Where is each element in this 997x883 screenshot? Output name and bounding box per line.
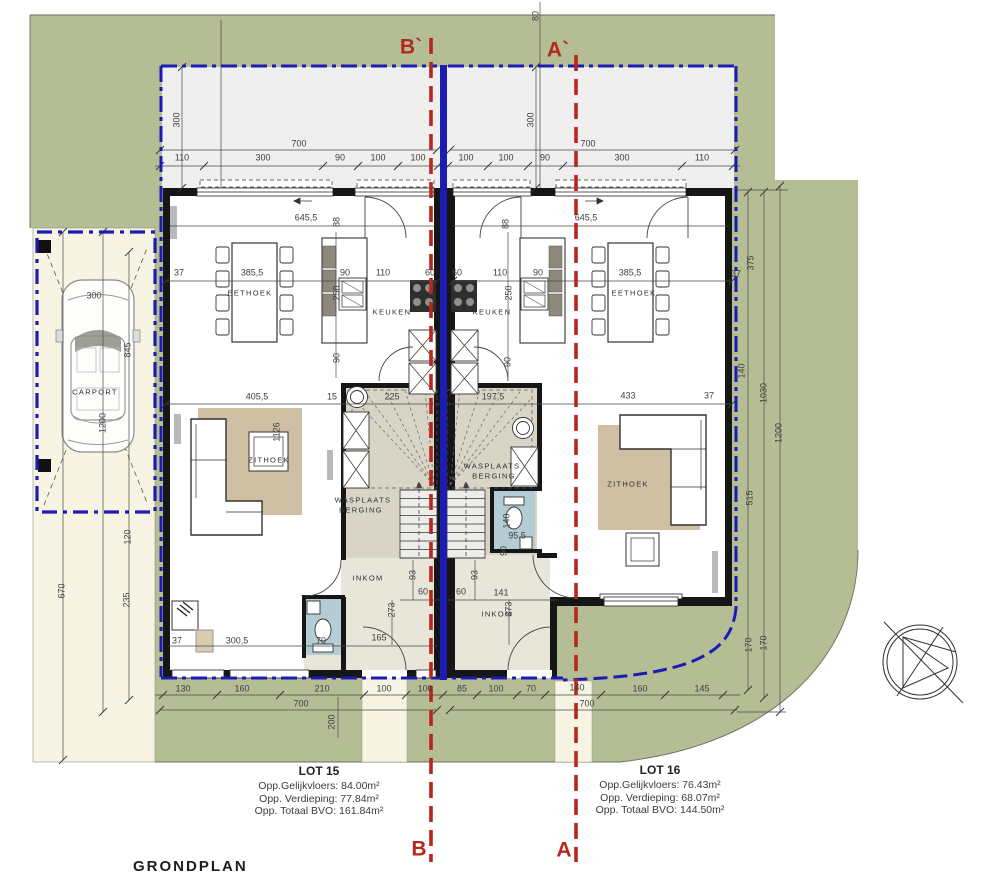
lot16-info: LOT 16 Opp.Gelijkvloers: 76.43m² Opp. Ve… [570,763,750,817]
radiator [174,414,181,444]
front-garden-strip [162,67,734,188]
lot15-ground-area: Opp.Gelijkvloers: 84.00m² [229,780,409,793]
section-label-a-top: A` [547,40,569,61]
lot15-info: LOT 15 Opp.Gelijkvloers: 84.00m² Opp. Ve… [229,764,409,818]
dining-table [608,243,653,342]
lot16-total-area: Opp. Totaal BVO: 144.50m² [570,804,750,817]
lot16-title: LOT 16 [570,763,750,777]
page-title: GRONDPLAN [133,858,248,875]
tv-panel [327,450,333,480]
north-arrow-icon [883,622,963,703]
lot16-ground-area: Opp.Gelijkvloers: 76.43m² [570,779,750,792]
section-label-b-top: B` [400,37,422,58]
car-icon [56,280,140,452]
section-label-b-bottom: B [411,839,426,860]
section-label-a-bottom: A [556,840,571,861]
desk [172,601,198,630]
lot15-title: LOT 15 [229,764,409,778]
carport-post [38,240,51,253]
tv-panel [712,551,718,593]
party-wall-boundary [440,65,447,680]
desk-chair [196,630,213,652]
lot15-floor-area: Opp. Verdieping: 77.84m² [229,793,409,806]
radiator [170,206,177,239]
dining-table [232,243,277,342]
floorplan-canvas: 7007001103009010010010010090300110300300… [0,0,997,883]
site-plan-drawing [0,0,997,883]
carport-post [38,459,51,472]
lot15-total-area: Opp. Totaal BVO: 161.84m² [229,805,409,818]
lot16-floor-area: Opp. Verdieping: 68.07m² [570,792,750,805]
